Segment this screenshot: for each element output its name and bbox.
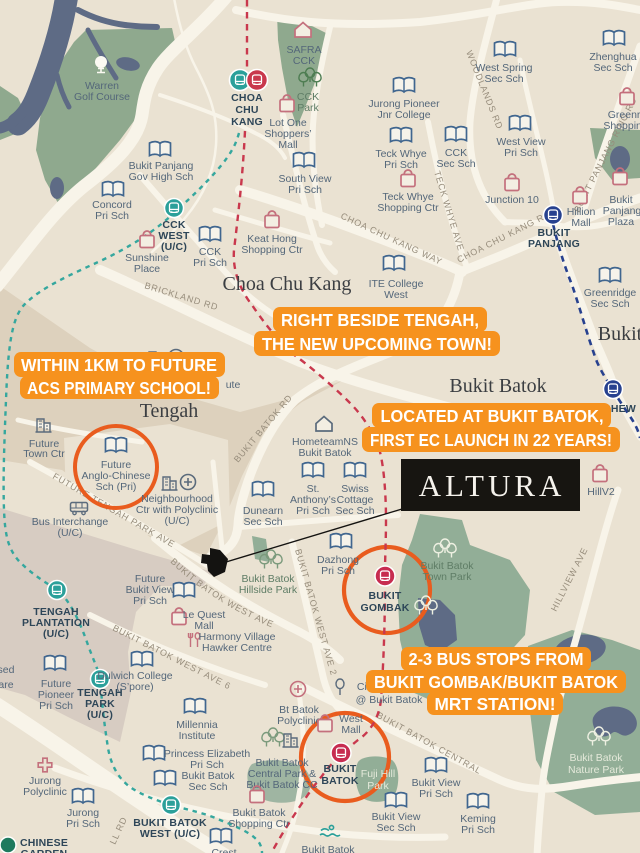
svg-text:Gov High Sch: Gov High Sch: [129, 171, 194, 183]
svg-text:CHOA: CHOA: [231, 92, 263, 104]
svg-text:GOMBAK: GOMBAK: [360, 602, 409, 614]
svg-text:Hawker Centre: Hawker Centre: [202, 642, 272, 654]
svg-text:FIRST EC LAUNCH IN 22 YEARS!: FIRST EC LAUNCH IN 22 YEARS!: [370, 430, 612, 450]
svg-text:Fuji Hill: Fuji Hill: [361, 768, 395, 780]
svg-text:Mall: Mall: [571, 217, 590, 229]
svg-text:Bukit Batok: Bukit Batok: [298, 447, 352, 459]
svg-text:LOCATED AT BUKIT BATOK,: LOCATED AT BUKIT BATOK,: [381, 406, 604, 426]
svg-text:Town Ctr: Town Ctr: [23, 448, 65, 460]
svg-text:Bukit Batok CC: Bukit Batok CC: [246, 779, 318, 791]
svg-text:BUKIT: BUKIT: [323, 763, 356, 775]
svg-text:Sch (Pri): Sch (Pri): [96, 481, 137, 493]
svg-text:ALTURA: ALTURA: [419, 468, 566, 503]
svg-text:Pri Sch: Pri Sch: [95, 210, 129, 222]
svg-text:Pri Sch: Pri Sch: [133, 595, 167, 607]
svg-text:Pri Sch: Pri Sch: [288, 184, 322, 196]
svg-text:(U/C): (U/C): [43, 628, 69, 640]
svg-text:Sec Sch: Sec Sch: [484, 73, 523, 85]
svg-text:Nature Park: Nature Park: [568, 764, 625, 776]
svg-text:(U/C): (U/C): [164, 515, 189, 527]
svg-text:Pri Sch: Pri Sch: [193, 257, 227, 269]
svg-text:2-3 BUS STOPS FROM: 2-3 BUS STOPS FROM: [409, 649, 584, 669]
svg-text:Shopping Ctr: Shopping Ctr: [228, 818, 290, 830]
svg-text:RIGHT BESIDE TENGAH,: RIGHT BESIDE TENGAH,: [281, 310, 479, 330]
svg-text:Junction 10: Junction 10: [485, 194, 539, 206]
svg-text:ACS PRIMARY SCHOOL!: ACS PRIMARY SCHOOL!: [27, 378, 211, 398]
svg-text:Polyclinic: Polyclinic: [23, 786, 67, 798]
svg-text:Pri Sch: Pri Sch: [296, 505, 330, 517]
svg-text:MRT STATION!: MRT STATION!: [435, 694, 556, 714]
svg-text:Shopping Ctr: Shopping Ctr: [377, 202, 439, 214]
svg-text:Sec Sch: Sec Sch: [436, 158, 475, 170]
svg-text:Mall: Mall: [341, 724, 360, 736]
svg-text:Institute: Institute: [179, 730, 216, 742]
svg-text:Tengah: Tengah: [140, 400, 199, 422]
svg-text:(U/C): (U/C): [87, 709, 113, 721]
svg-text:WEST (U/C): WEST (U/C): [140, 828, 200, 840]
svg-text:Sec Sch: Sec Sch: [376, 822, 415, 834]
svg-text:Park: Park: [297, 102, 319, 114]
svg-text:Plaza: Plaza: [608, 216, 634, 228]
svg-text:Golf Course: Golf Course: [74, 91, 130, 103]
svg-text:Bukit Batok: Bukit Batok: [449, 375, 546, 397]
svg-text:Pri Sch: Pri Sch: [39, 700, 73, 712]
svg-text:Bukit Batok: Bukit Batok: [569, 752, 623, 764]
svg-text:PANJANG: PANJANG: [528, 238, 580, 250]
svg-text:BUKIT: BUKIT: [368, 590, 401, 602]
svg-text:Bukit: Bukit: [598, 323, 640, 345]
svg-text:Shopping Ctr: Shopping Ctr: [603, 120, 640, 132]
svg-text:Sec Sch: Sec Sch: [335, 505, 374, 517]
svg-text:Place: Place: [134, 263, 160, 275]
svg-text:BATOK: BATOK: [321, 775, 359, 787]
svg-text:Crest: Crest: [211, 847, 236, 853]
svg-text:Shopping Ctr: Shopping Ctr: [241, 244, 303, 256]
svg-text:(S’pore): (S’pore): [116, 681, 153, 693]
svg-text:THE NEW UPCOMING TOWN!: THE NEW UPCOMING TOWN!: [262, 334, 492, 354]
svg-text:Choa Chu Kang: Choa Chu Kang: [223, 273, 352, 295]
svg-text:Town Park: Town Park: [422, 571, 472, 583]
svg-text:West: West: [384, 289, 408, 301]
svg-text:CCK: CCK: [293, 55, 315, 67]
svg-text:are: are: [0, 679, 14, 691]
svg-text:Hillside Park: Hillside Park: [239, 584, 298, 596]
svg-text:ute: ute: [226, 379, 241, 391]
svg-text:sed: sed: [0, 664, 15, 676]
svg-text:Sec Sch: Sec Sch: [590, 298, 629, 310]
svg-text:HillV2: HillV2: [587, 486, 615, 498]
svg-text:Bukit Batok: Bukit Batok: [301, 844, 355, 853]
svg-text:Pri Sch: Pri Sch: [384, 159, 418, 171]
svg-text:Pri Sch: Pri Sch: [321, 565, 355, 577]
svg-text:WITHIN 1KM TO FUTURE: WITHIN 1KM TO FUTURE: [21, 355, 217, 375]
svg-text:CHU: CHU: [235, 104, 258, 116]
svg-text:Pri Sch: Pri Sch: [504, 147, 538, 159]
svg-text:Polyclinic: Polyclinic: [277, 715, 321, 727]
svg-text:(U/C): (U/C): [57, 527, 82, 539]
svg-text:Pri Sch: Pri Sch: [461, 824, 495, 836]
svg-text:Mall: Mall: [278, 139, 297, 151]
svg-text:Sec Sch: Sec Sch: [593, 62, 632, 74]
svg-text:GARDEN: GARDEN: [21, 848, 68, 853]
svg-text:BUKIT GOMBAK/BUKIT BATOK: BUKIT GOMBAK/BUKIT BATOK: [374, 672, 618, 692]
svg-text:Sec Sch: Sec Sch: [188, 781, 227, 793]
svg-text:Sec Sch: Sec Sch: [243, 516, 282, 528]
svg-text:Jnr College: Jnr College: [377, 109, 430, 121]
svg-text:Pri Sch: Pri Sch: [66, 818, 100, 830]
svg-text:@ Bukit Batok: @ Bukit Batok: [356, 694, 423, 706]
svg-text:Park: Park: [367, 780, 389, 792]
svg-text:KANG: KANG: [231, 116, 263, 128]
svg-text:Pri Sch: Pri Sch: [419, 788, 453, 800]
